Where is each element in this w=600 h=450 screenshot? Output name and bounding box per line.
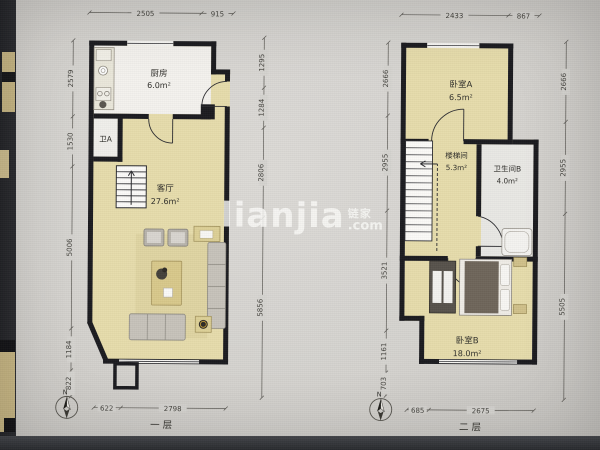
bed-b-label: 卧室B [456, 335, 479, 346]
svg-text:703: 703 [380, 377, 388, 390]
sink-icon [99, 66, 108, 75]
bath-b-label: 卫生间B [494, 163, 522, 173]
svg-text:2505: 2505 [137, 10, 155, 18]
svg-text:2579: 2579 [67, 69, 75, 87]
cropped-plan-fragment [2, 52, 15, 112]
stair-label: 楼梯间 [445, 150, 468, 160]
bed-b-area: 18.0m² [453, 349, 482, 358]
compass-n-label: N [377, 391, 382, 399]
svg-text:867: 867 [517, 13, 530, 21]
bath-b-area: 4.0m² [497, 176, 518, 185]
sofa [129, 314, 185, 340]
living-area: 27.6m² [151, 197, 180, 206]
svg-text:1161: 1161 [380, 343, 388, 361]
cropped-plan-fragment [0, 150, 9, 178]
svg-text:1530: 1530 [67, 132, 75, 150]
photo-left-edge [0, 0, 16, 450]
stair-area: 5.3m² [446, 163, 467, 172]
svg-text:1295: 1295 [258, 54, 266, 72]
pot-icon [99, 101, 106, 108]
entry-step [115, 364, 137, 388]
kitchen-label: 厨房 [151, 68, 168, 79]
armchair-cushion [147, 232, 161, 243]
bathtub [502, 228, 532, 255]
photo-bottom-edge [0, 436, 600, 450]
pillow [501, 264, 510, 285]
svg-text:2433: 2433 [446, 12, 464, 20]
coffee-table [151, 261, 181, 305]
bed-blanket [464, 261, 498, 313]
floor-plan-first-floor: 厨房 6.0m² 卫A 客厅 27.6m² 2505 915 2579 1530 [51, 3, 272, 432]
svg-text:2675: 2675 [472, 407, 490, 415]
kitchen-area: 6.0m² [147, 81, 171, 90]
svg-text:3521: 3521 [381, 262, 389, 280]
nightstand [513, 304, 526, 313]
svg-text:5856: 5856 [256, 298, 264, 316]
svg-text:2955: 2955 [381, 154, 389, 172]
floorplan-photo: 厨房 6.0m² 卫A 客厅 27.6m² 2505 915 2579 1530 [0, 0, 600, 450]
compass-second-floor: N [370, 390, 392, 420]
bed-a-area: 6.5m² [449, 93, 473, 102]
svg-text:2806: 2806 [257, 163, 265, 181]
svg-text:1284: 1284 [258, 98, 266, 116]
svg-text:2798: 2798 [164, 405, 182, 413]
second-floor-label: 二层 [459, 422, 484, 433]
svg-text:685: 685 [411, 407, 424, 415]
living-label: 客厅 [157, 183, 175, 194]
compass-n-label: N [63, 388, 68, 396]
svg-text:5505: 5505 [558, 298, 566, 316]
sofa-long [207, 242, 226, 328]
svg-text:915: 915 [211, 10, 224, 18]
pillow [500, 289, 509, 310]
nightstand [514, 257, 527, 266]
svg-text:1184: 1184 [65, 340, 73, 358]
svg-text:2666: 2666 [382, 69, 390, 87]
first-floor-label: 一层 [150, 420, 175, 431]
scene: 厨房 6.0m² 卫A 客厅 27.6m² 2505 915 2579 1530 [0, 0, 600, 450]
svg-text:622: 622 [100, 405, 113, 413]
kitchen-counter [94, 48, 114, 110]
stove-icon [96, 88, 111, 101]
svg-text:2666: 2666 [560, 72, 568, 90]
bed-a-label: 卧室A [450, 79, 473, 90]
appliance-icon [96, 50, 111, 61]
floor-plan-second-floor: 卧室A 6.5m² 楼梯间 5.3m² 卫生间B 4.0m² 卧室B 18.0m… [367, 5, 594, 434]
svg-text:5006: 5006 [66, 238, 74, 256]
bath-a-label: 卫A [99, 135, 113, 144]
svg-text:2955: 2955 [559, 159, 567, 177]
staircase-1 [116, 166, 146, 208]
